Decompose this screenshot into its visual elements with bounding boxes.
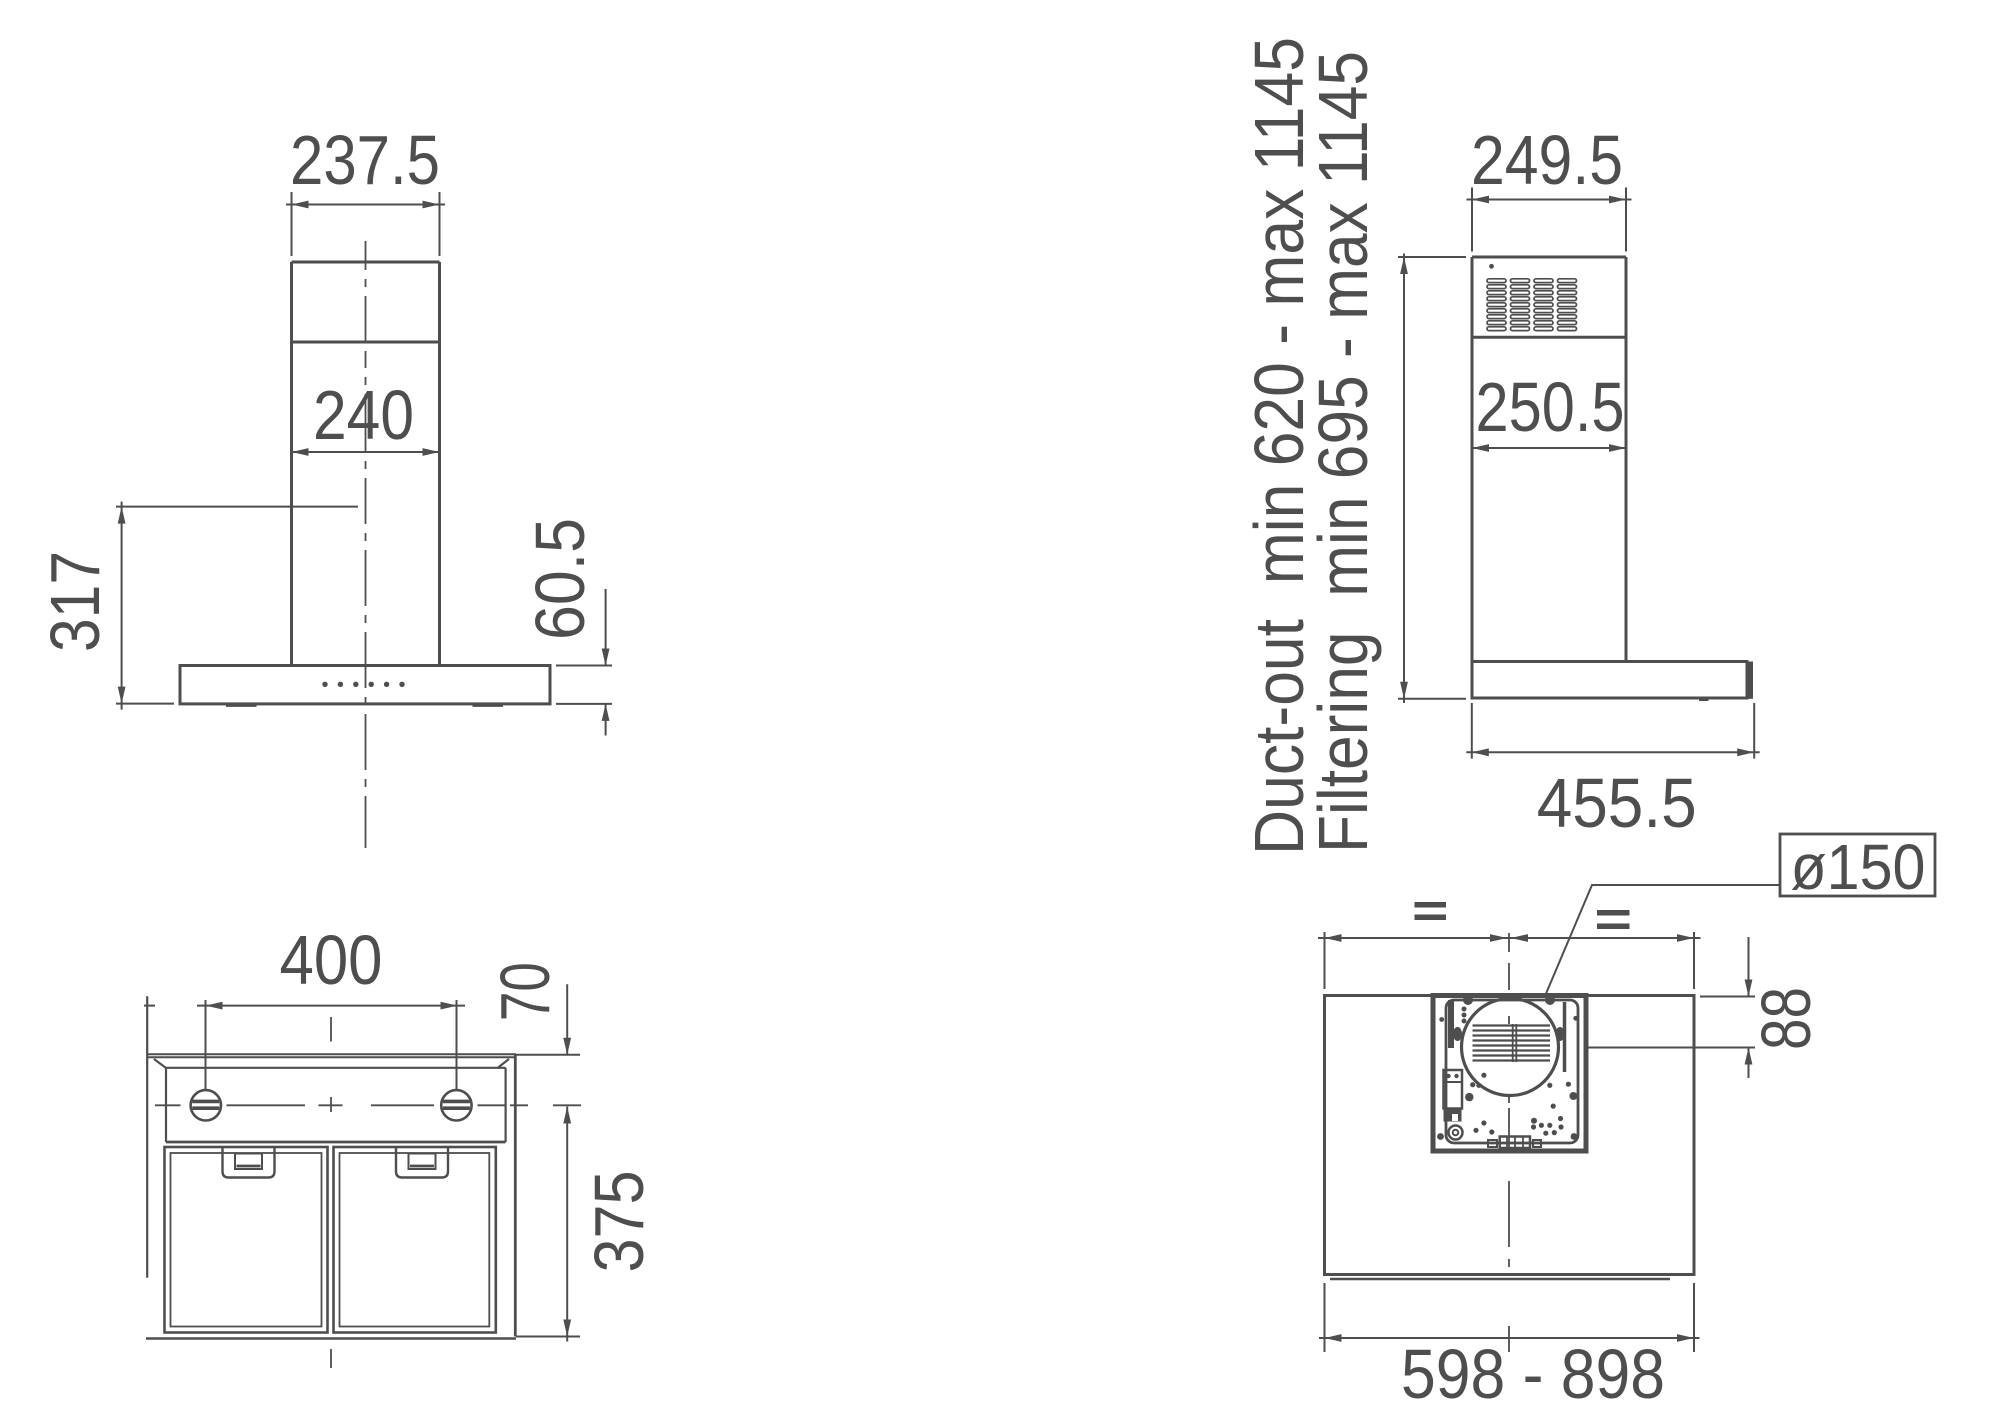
svg-text:240: 240: [313, 376, 414, 454]
svg-text:88: 88: [1747, 987, 1825, 1050]
svg-text:237.5: 237.5: [290, 121, 440, 199]
svg-text:ø150: ø150: [1791, 831, 1926, 903]
svg-text:70: 70: [486, 962, 564, 1021]
svg-text:400: 400: [280, 921, 383, 999]
svg-text:Filtering min 695 - max 1145: Filtering min 695 - max 1145: [1304, 51, 1382, 853]
svg-text:455.5: 455.5: [1537, 764, 1697, 842]
svg-text:250.5: 250.5: [1476, 368, 1625, 446]
svg-text:317: 317: [36, 551, 114, 652]
svg-text:598 - 898: 598 - 898: [1401, 1335, 1665, 1413]
svg-text:375: 375: [580, 1171, 658, 1273]
svg-text:249.5: 249.5: [1471, 121, 1623, 199]
svg-text:60.5: 60.5: [521, 518, 599, 640]
